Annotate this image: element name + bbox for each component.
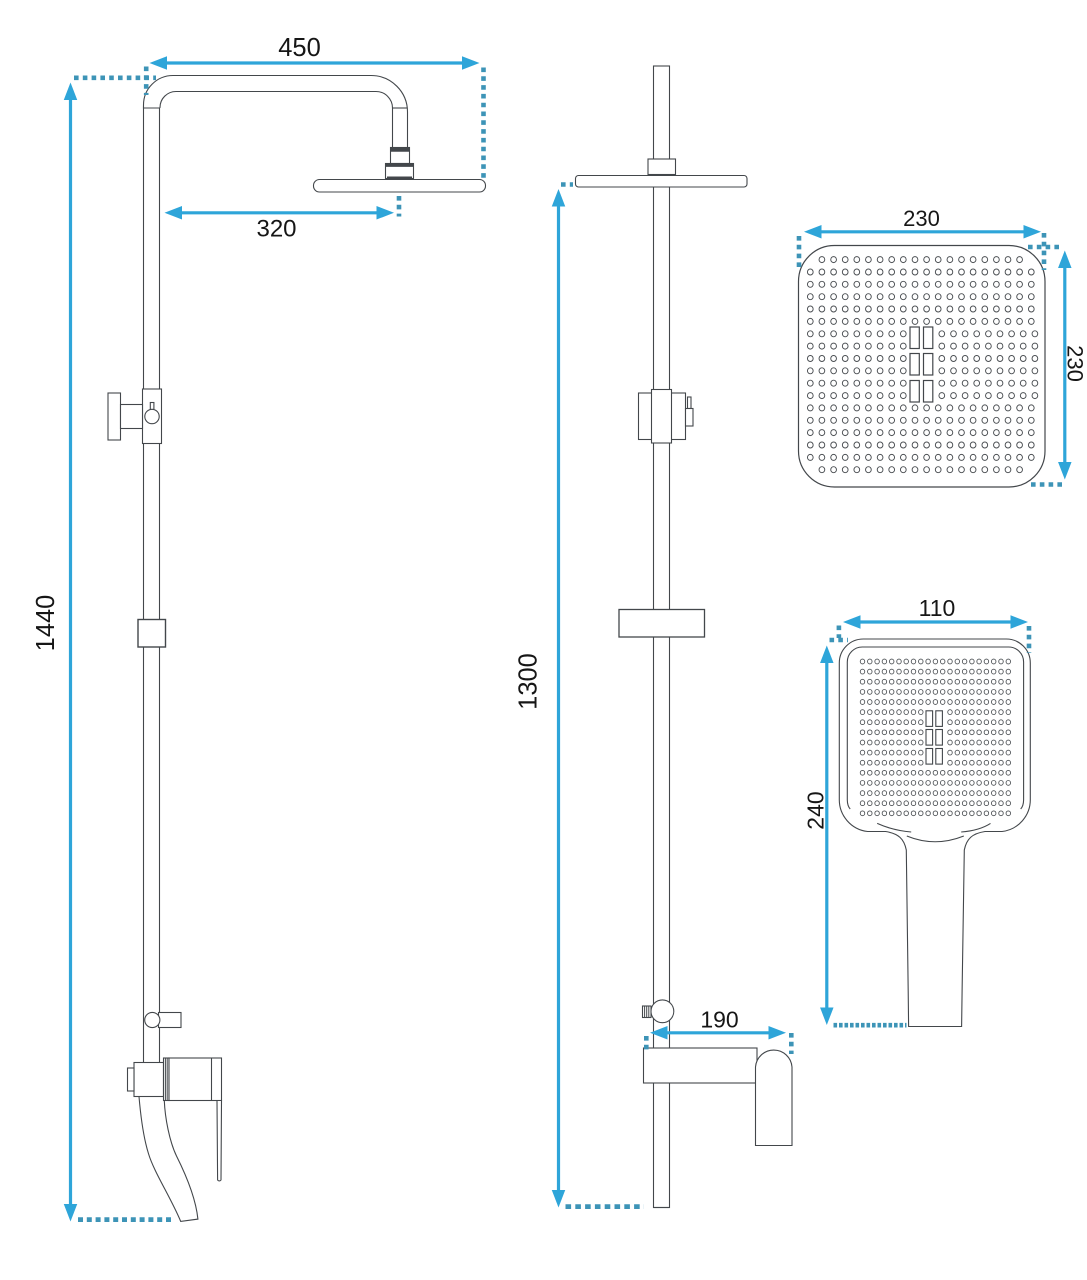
- svg-text:110: 110: [919, 595, 956, 621]
- svg-text:230: 230: [1063, 345, 1087, 382]
- svg-text:240: 240: [803, 791, 829, 829]
- svg-text:1300: 1300: [515, 653, 543, 710]
- svg-text:230: 230: [903, 206, 940, 231]
- svg-text:450: 450: [278, 34, 321, 62]
- svg-text:190: 190: [700, 1007, 738, 1033]
- svg-text:1440: 1440: [32, 595, 60, 652]
- svg-text:320: 320: [256, 216, 296, 243]
